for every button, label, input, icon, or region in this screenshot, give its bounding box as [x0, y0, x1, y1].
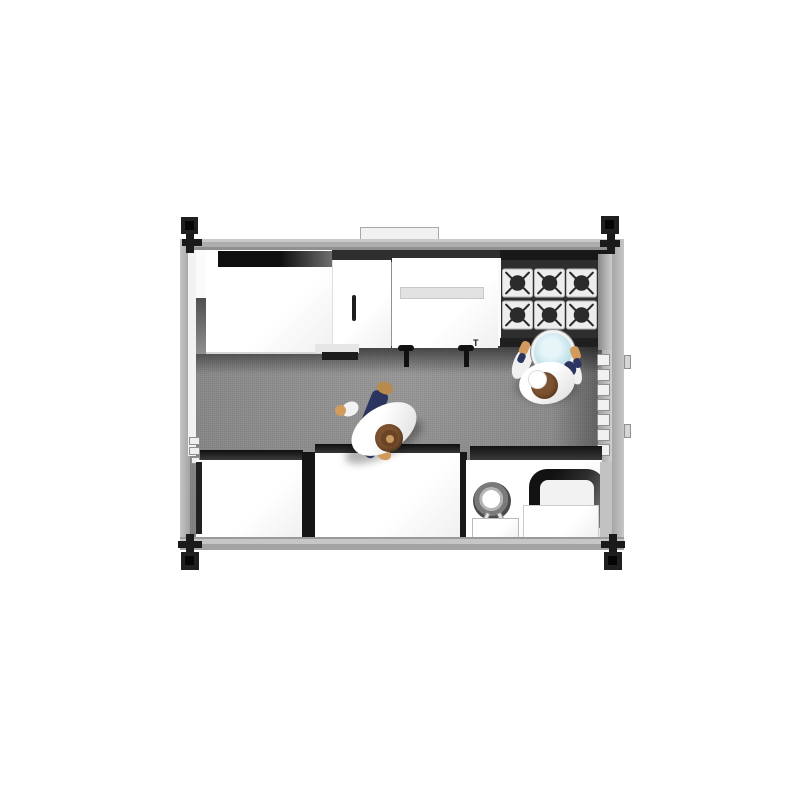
shelf-bin: [597, 384, 610, 396]
wall-notch-left: [196, 250, 206, 300]
prep-counter-shadow: [218, 251, 332, 267]
cabinet-base-shadow: [322, 352, 358, 360]
fryer-valve-left-stem: [404, 350, 409, 367]
fryer-unit: [392, 258, 498, 348]
shelf-bin: [597, 429, 610, 441]
counter-bl-shadow: [200, 450, 303, 460]
wall-right: [612, 239, 624, 550]
stove-burner: [502, 300, 533, 330]
wall-top: [180, 239, 624, 250]
gas-range-right-filler: [598, 254, 612, 350]
chef1-hat: [528, 370, 547, 389]
stove-burner: [534, 300, 565, 330]
wall-lining-left: [188, 250, 196, 456]
station-back-shadow: [470, 446, 602, 461]
shelf-bin: [597, 399, 610, 411]
gas-range-left-gap: [498, 258, 501, 346]
kitchen-render: T: [0, 0, 798, 800]
tall-cabinet: [332, 260, 391, 348]
stove-burner: [534, 268, 565, 298]
counter-bottom-middle: [315, 453, 460, 537]
left-wall-box: [189, 437, 200, 445]
station-right-filler: [600, 462, 612, 537]
shelf-bin: [597, 354, 610, 366]
chef2-hand: [335, 405, 346, 416]
stove-burner: [502, 268, 533, 298]
cabinet-handle: [352, 295, 356, 321]
fryer-valve-right-stem: [464, 350, 469, 367]
shelf-bin: [597, 369, 610, 381]
counter-gap-1: [302, 452, 315, 537]
mixer-ring: [473, 482, 511, 520]
wall-bottom: [180, 537, 624, 550]
station-white-box: [523, 505, 599, 539]
counter-bl-left-edge: [196, 462, 202, 534]
stove-burner: [566, 268, 597, 298]
wall-exterior-latch: [624, 424, 631, 438]
shelf-bin: [597, 414, 610, 426]
fryer-handle-strip: [400, 287, 484, 299]
stove-burner: [566, 300, 597, 330]
counter-bottom-left: [196, 460, 302, 537]
chef2-hair-highlight: [386, 435, 394, 443]
burner-grid: [502, 268, 598, 330]
wall-exterior-latch: [624, 355, 631, 369]
left-wall-box: [189, 447, 200, 455]
valve-t-mark: T: [473, 339, 479, 348]
